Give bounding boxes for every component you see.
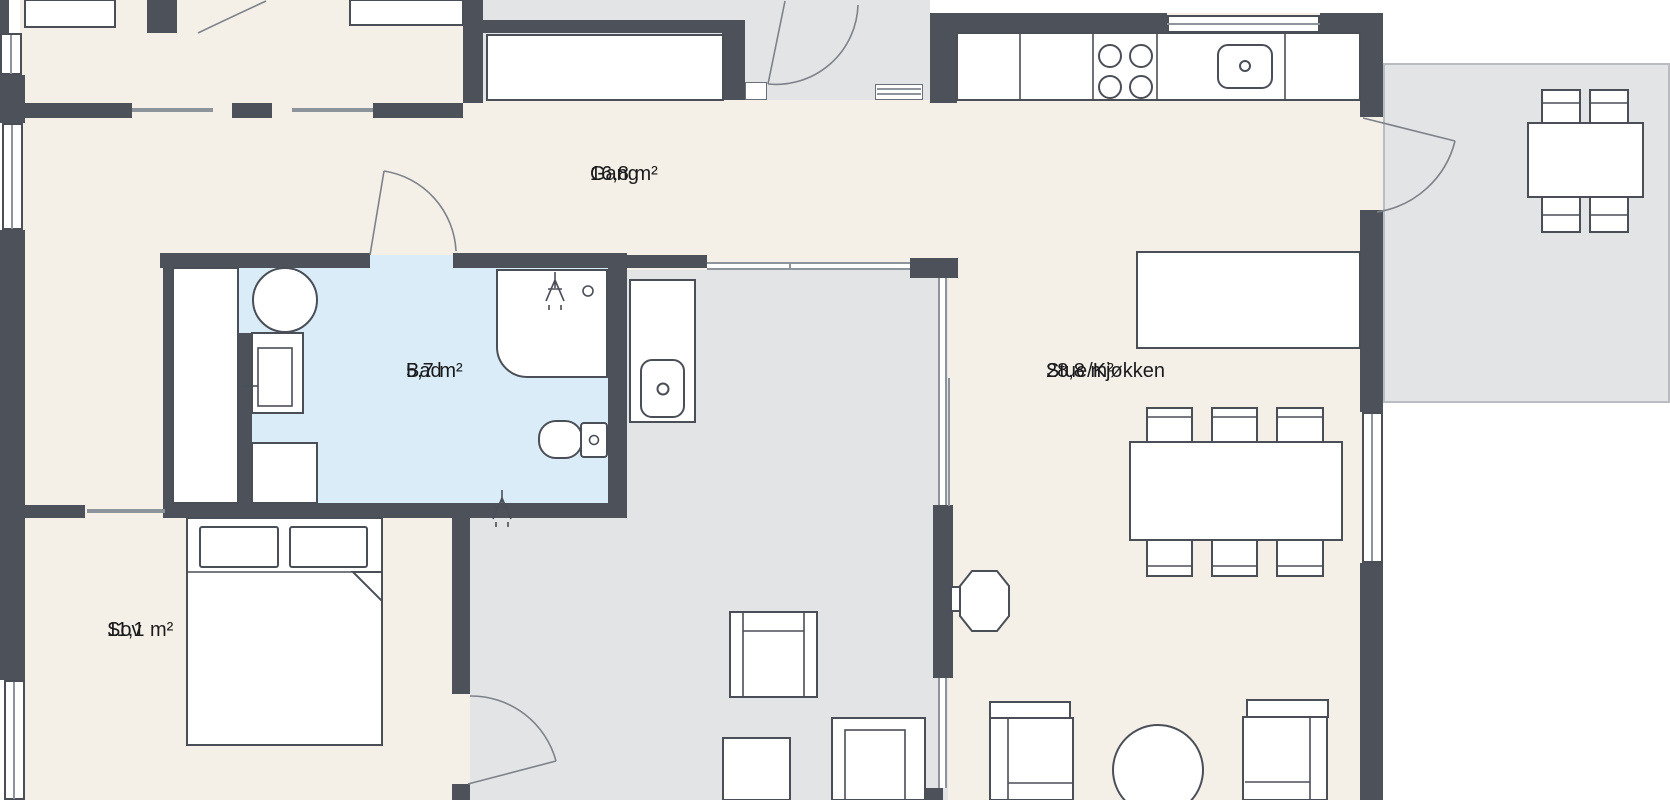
wall-bath-left [163,268,173,505]
wall-glass-post [910,258,958,278]
wall-gang-top-2 [232,103,272,118]
room-area: 11,1 m² [107,616,173,645]
sliding-door-gang-1 [132,108,213,112]
wall-right-2 [1360,210,1383,412]
wall-bath-top-right [453,253,627,268]
wall-left-3 [0,230,25,680]
wall-gang-top-1 [20,103,132,118]
wall-bedroom-right [452,518,470,694]
window-left-2 [2,123,23,230]
wall-bath-top-left [160,253,370,268]
floor-terrace [1383,63,1670,403]
window-left-1 [0,33,22,75]
sliding-door-gang-2 [292,108,373,112]
wall-vestibule-left [463,0,483,103]
floor-plan: Gang 16,8 m² Bad 5,7 m² Stue/Kjøkken 28,… [0,0,1670,800]
wall-bath-right [608,262,627,518]
entry-threshold-right [875,84,923,100]
floor-vestibule [483,0,930,100]
entry-threshold-left [745,82,767,100]
wall-vestibule-bottom [483,20,745,33]
wall-vestibule-stub [722,25,745,100]
floor-tv-room-upper [627,270,948,518]
floor-bathroom [163,255,627,518]
floor-tv-room-lower [470,518,948,800]
wall-right-1 [1360,33,1383,117]
wall-upper-room-stub [147,0,177,33]
room-area: 16,8 m² [590,160,658,189]
wall-mid-stub [923,788,943,800]
wall-bedroom-right-stub [452,784,470,800]
wall-tvroom-top [627,255,707,268]
glass-partition-upper [938,278,947,505]
room-area: 28,8 m² [1046,357,1114,386]
wall-bedroom-top [25,505,85,518]
wall-right-3 [1360,563,1383,800]
wall-mid-partition [933,505,953,678]
wall-kitchen-top [930,13,1167,33]
wall-left-top [0,0,9,33]
window-right [1362,412,1383,563]
wall-vestibule-right [930,33,957,103]
wall-bath-divider [238,333,252,503]
room-area: 5,7 m² [406,357,463,386]
window-left-3 [4,680,25,800]
window-kitchen-top [1167,15,1320,33]
exterior-strip [930,0,1383,13]
wall-gang-top-3 [373,103,463,118]
glass-partition-top [707,262,910,270]
wall-bath-bottom [163,503,627,518]
glass-partition-lower [938,678,947,788]
sliding-door-bedroom [87,509,165,513]
